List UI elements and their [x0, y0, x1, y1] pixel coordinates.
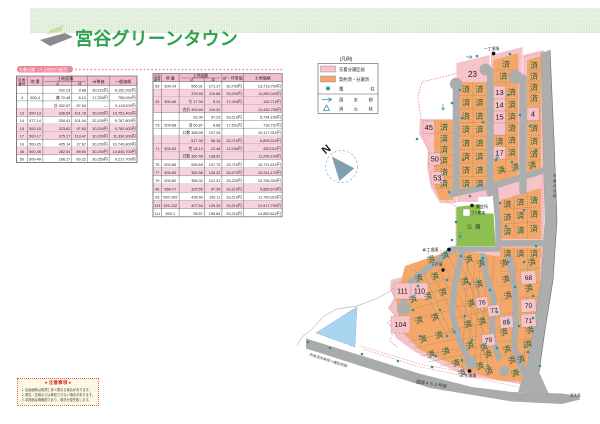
- svg-text:済: 済: [495, 137, 503, 147]
- svg-text:13: 13: [495, 88, 503, 97]
- svg-text:済: 済: [499, 71, 507, 81]
- svg-text:済: 済: [530, 71, 538, 81]
- svg-text:先着分譲区画: 先着分譲区画: [339, 66, 365, 73]
- svg-text:済: 済: [462, 124, 470, 134]
- svg-text:済: 済: [475, 138, 483, 148]
- svg-text:済: 済: [530, 60, 538, 70]
- svg-text:済: 済: [508, 148, 516, 158]
- svg-text:済: 済: [440, 122, 448, 132]
- svg-text:済: 済: [462, 84, 470, 94]
- svg-text:済: 済: [440, 134, 448, 144]
- svg-text:50: 50: [431, 155, 439, 164]
- svg-text:済: 済: [475, 178, 483, 188]
- svg-text:68: 68: [525, 275, 533, 282]
- svg-text:電柱: 電柱: [339, 86, 402, 93]
- svg-text:済: 済: [475, 111, 483, 121]
- svg-text:済: 済: [530, 123, 538, 133]
- svg-text:済: 済: [508, 112, 516, 122]
- svg-text:済: 済: [475, 97, 483, 107]
- svg-text:済: 済: [516, 225, 524, 235]
- svg-text:済: 済: [530, 209, 538, 219]
- svg-text:76: 76: [478, 299, 487, 307]
- svg-text:市: 市: [553, 173, 557, 178]
- svg-text:済: 済: [462, 178, 470, 188]
- svg-text:ゴミ置場: ゴミ置場: [471, 210, 486, 215]
- svg-text:下戸境: 下戸境: [431, 262, 443, 267]
- svg-text:二丁堀境: 二丁堀境: [423, 247, 438, 252]
- svg-text:済: 済: [516, 249, 524, 259]
- svg-text:済: 済: [440, 145, 448, 155]
- svg-text:済: 済: [502, 59, 510, 69]
- svg-text:済: 済: [440, 156, 448, 166]
- svg-text:大: 大: [553, 183, 557, 188]
- svg-text:済: 済: [475, 151, 483, 161]
- svg-text:契約済・分譲済: 契約済・分譲済: [339, 76, 370, 83]
- svg-text:済: 済: [503, 199, 511, 209]
- svg-text:済: 済: [440, 167, 448, 177]
- svg-text:集会所: 集会所: [476, 203, 488, 209]
- svg-text:至氷見: 至氷見: [570, 393, 581, 398]
- svg-text:消火栓: 消火栓: [339, 106, 383, 113]
- svg-text:111: 111: [397, 289, 408, 296]
- svg-text:17: 17: [495, 148, 503, 157]
- svg-text:済: 済: [516, 197, 524, 207]
- svg-text:済: 済: [475, 165, 483, 175]
- svg-text:済: 済: [440, 179, 448, 189]
- svg-text:済: 済: [503, 212, 511, 222]
- svg-text:済: 済: [530, 224, 538, 234]
- svg-text:済: 済: [508, 135, 516, 145]
- svg-text:済: 済: [462, 111, 470, 121]
- svg-text:済: 済: [530, 93, 538, 103]
- svg-text:済: 済: [503, 227, 511, 237]
- svg-text:一丁堀境: 一丁堀境: [484, 46, 499, 51]
- svg-text:公園: 公園: [467, 224, 483, 231]
- svg-text:線: 線: [553, 193, 557, 198]
- svg-text:[凡例]: [凡例]: [340, 56, 352, 63]
- svg-text:71: 71: [525, 318, 533, 325]
- svg-text:済: 済: [462, 165, 470, 175]
- svg-text:済: 済: [508, 123, 516, 133]
- svg-text:104: 104: [395, 322, 407, 329]
- svg-text:谷: 谷: [553, 188, 557, 193]
- svg-text:済: 済: [475, 84, 483, 94]
- svg-text:済: 済: [530, 136, 538, 146]
- svg-text:70: 70: [525, 303, 533, 310]
- svg-text:済: 済: [462, 138, 470, 148]
- svg-text:14: 14: [495, 101, 503, 110]
- svg-text:二丁堀境: 二丁堀境: [461, 373, 476, 378]
- svg-text:済: 済: [475, 124, 483, 134]
- svg-text:済: 済: [516, 211, 524, 221]
- svg-text:N: N: [320, 143, 334, 157]
- svg-text:済: 済: [503, 249, 511, 259]
- svg-text:済: 済: [508, 100, 516, 110]
- svg-text:15: 15: [495, 113, 503, 122]
- svg-text:23: 23: [468, 70, 477, 79]
- svg-text:4: 4: [531, 110, 535, 119]
- svg-text:済: 済: [462, 97, 470, 107]
- svg-text:済: 済: [530, 82, 538, 92]
- svg-text:45: 45: [425, 123, 433, 132]
- svg-text:雨水枡: 雨水枡: [339, 97, 383, 104]
- svg-text:道: 道: [553, 178, 557, 183]
